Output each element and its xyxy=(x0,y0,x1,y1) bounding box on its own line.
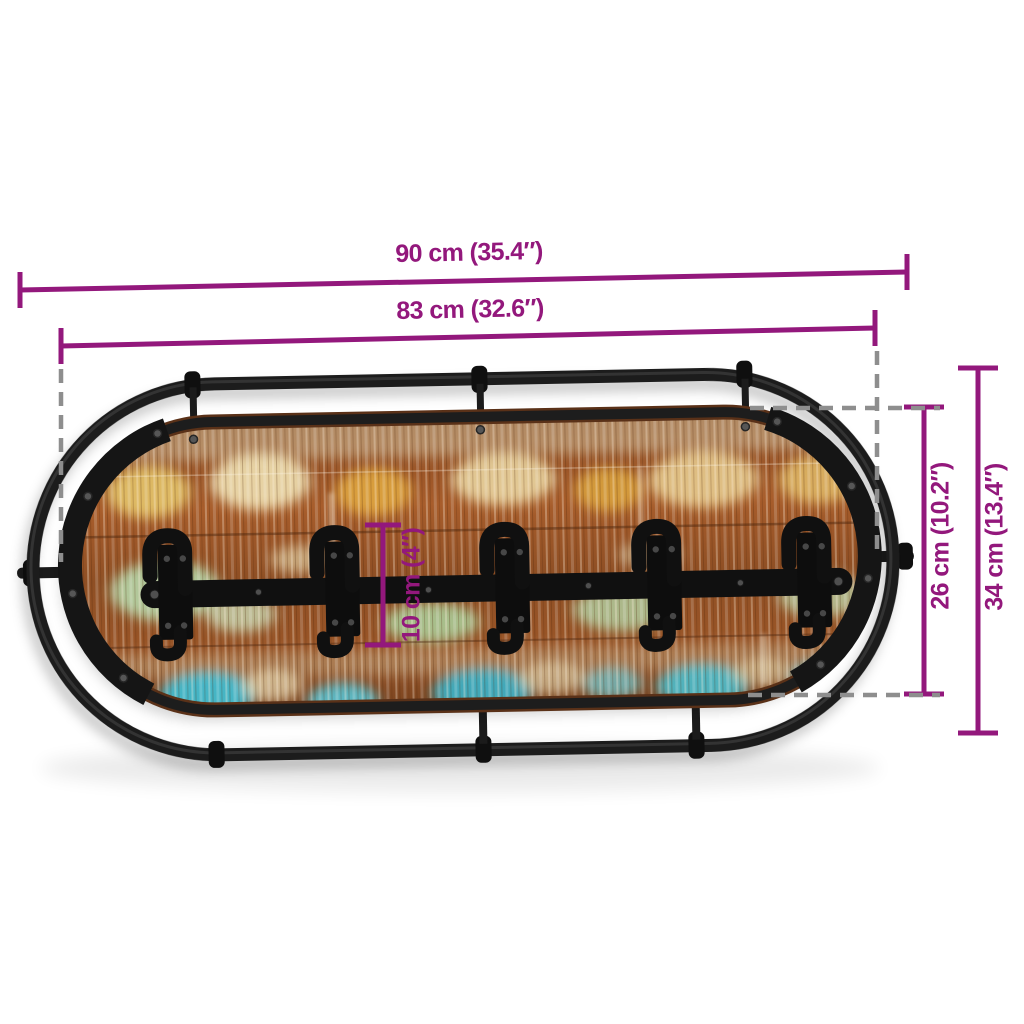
label-frame-width: 83 cm (32.6″) xyxy=(396,294,544,326)
label-panel-height: 26 cm (10.2″) xyxy=(927,462,956,609)
product-illustration xyxy=(0,0,1024,1024)
label-hook-height: 10 cm (4″) xyxy=(398,528,427,642)
label-overall-width: 90 cm (35.4″) xyxy=(395,237,543,269)
product-dimension-diagram: 90 cm (35.4″) 83 cm (32.6″) 26 cm (10.2″… xyxy=(0,0,1024,1024)
label-overall-height: 34 cm (13.4″) xyxy=(981,463,1010,610)
coat-rack xyxy=(13,358,917,772)
